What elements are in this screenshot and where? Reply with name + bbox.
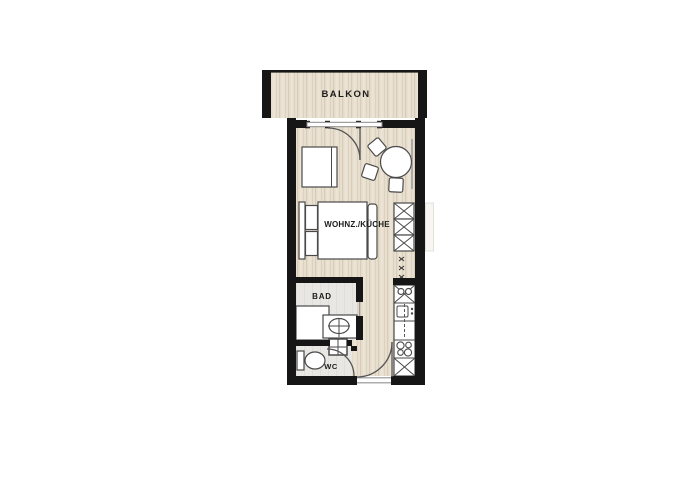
wall-top-left-segment	[287, 120, 307, 128]
bathroom-wc-wall-left	[287, 340, 330, 346]
window-icon	[307, 122, 382, 126]
balcony-parapet-top	[262, 70, 427, 73]
living-kitchen-label: WOHNZ./KÜCHE	[324, 220, 390, 229]
floor-plan-drawing: BALKON WOHNZ./KÜCHE BAD WC	[0, 0, 700, 500]
wall-bottom-left-segment	[287, 376, 357, 385]
toilet-icon	[297, 351, 325, 370]
desk-icon	[302, 147, 337, 187]
wc-label: WC	[324, 362, 338, 371]
floor-plan: BALKON WOHNZ./KÜCHE BAD WC	[0, 0, 700, 500]
vanity-sink-icon	[323, 315, 357, 338]
kitchen-counter	[394, 285, 415, 376]
dining-table-icon	[381, 147, 412, 178]
bathroom-wc-wall-right	[347, 340, 352, 346]
hand-basin-icon	[329, 339, 347, 355]
bathroom-label: BAD	[312, 292, 332, 301]
balcony-label: BALKON	[321, 89, 370, 100]
wall-bottom-right-segment	[391, 376, 425, 385]
wc-door-jamb	[351, 346, 357, 351]
balcony-wall-right	[418, 70, 427, 118]
chair-icon	[389, 178, 404, 193]
wardrobe-icon	[394, 203, 414, 251]
bathroom-right-wall-lower	[356, 316, 363, 340]
bathroom-right-wall-upper	[356, 283, 363, 302]
wall-right	[415, 118, 425, 385]
exterior-window-recess	[426, 203, 434, 251]
wall-top-right-segment	[381, 120, 415, 128]
kitchen-wall-stub	[393, 278, 415, 285]
bathroom-top-wall	[287, 277, 363, 283]
balcony-wall-left	[262, 70, 271, 118]
